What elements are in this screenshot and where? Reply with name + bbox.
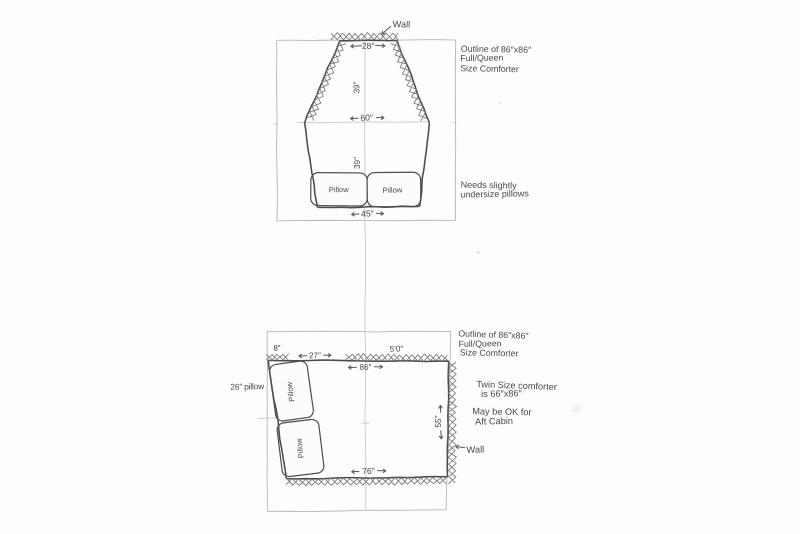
svg-text:is 66″x86″: is 66″x86″ <box>481 388 523 399</box>
svg-text:55″: 55″ <box>434 415 443 427</box>
svg-text:Size Comforter: Size Comforter <box>460 63 519 74</box>
svg-text:86″: 86″ <box>359 363 371 372</box>
svg-text:undersize pillows: undersize pillows <box>460 188 529 199</box>
svg-text:27″: 27″ <box>309 351 321 360</box>
svg-text:45″: 45″ <box>361 208 374 218</box>
svg-text:60″: 60″ <box>360 112 373 122</box>
svg-text:Pillow: Pillow <box>329 185 350 194</box>
svg-text:Wall: Wall <box>392 19 410 30</box>
svg-text:Pillow: Pillow <box>382 185 403 195</box>
svg-text:Full/Queen: Full/Queen <box>460 52 503 63</box>
svg-text:28″: 28″ <box>362 41 375 51</box>
svg-text:5'0″: 5'0″ <box>390 344 404 353</box>
svg-text:39″: 39″ <box>352 81 361 93</box>
svg-text:39″: 39″ <box>353 157 362 169</box>
svg-text:Aft Cabin: Aft Cabin <box>475 416 513 427</box>
svg-text:Size Comforter: Size Comforter <box>460 347 519 358</box>
svg-text:Wall: Wall <box>466 443 484 455</box>
svg-text:76″: 76″ <box>362 466 375 476</box>
svg-text:26″ pillow: 26″ pillow <box>230 381 265 392</box>
svg-text:8″: 8″ <box>273 344 280 353</box>
